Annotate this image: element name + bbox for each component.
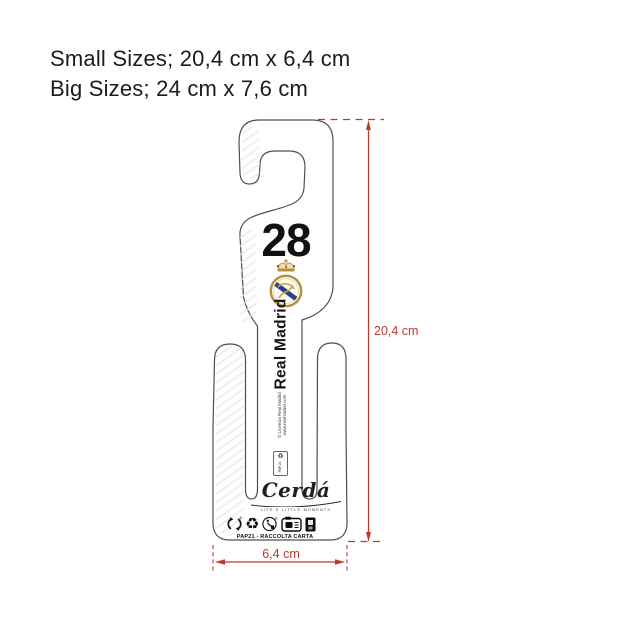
width-dimension-label: 6,4 cm [251,547,311,561]
recycling-caption: PAP21 - RACCOLTA CARTA [223,534,327,540]
width-arrow-left [215,559,225,564]
product-dimension-diagram: Small Sizes; 20,4 cm x 6,4 cm Big Sizes;… [0,0,620,620]
waste-bin-icon [305,517,316,532]
svg-text:®: ® [275,516,278,521]
paper-carton-icon [281,516,302,532]
cardboard-hatch-texture [216,127,260,536]
mobius-loop-recycle-icon: ♻ [245,516,259,532]
brand-tagline: LIFE'S LITTLE MOMENTS [243,508,349,512]
brand-logo: Cerdá LIFE'S LITTLE MOMENTS [243,480,349,512]
triman-recycle-icon: ♻ [278,454,284,461]
crest-crown [277,259,295,271]
height-arrow-down [366,532,371,542]
height-dimension-label: 20,4 cm [374,324,418,338]
brand-logo-text: Cerdá [243,480,349,500]
tidyman-disposal-icon: ® [262,516,278,532]
license-text: © Licencia Real Madrid www.realmadrid.co… [277,390,289,440]
height-arrow-up [366,120,371,130]
triman-label: ♻ PAP 21 [273,451,288,476]
circular-arrows-recycle-icon: ® [227,516,242,532]
license-line2: www.realmadrid.com [282,390,287,440]
svg-text:®: ® [239,516,242,521]
triman-code: PAP 21 [279,461,283,472]
team-name-vertical: Real Madrid [273,300,290,390]
width-arrow-right [335,559,345,564]
recycling-icons-row: ® ♻ ® [227,515,316,533]
